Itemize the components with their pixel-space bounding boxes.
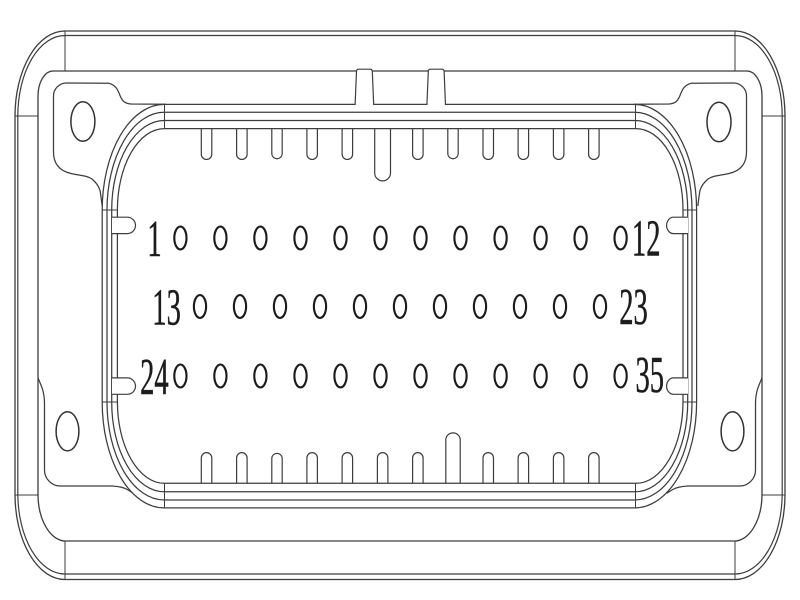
svg-text:24: 24 xyxy=(140,349,169,406)
svg-text:1: 1 xyxy=(147,211,161,268)
svg-text:35: 35 xyxy=(636,347,665,404)
svg-text:13: 13 xyxy=(152,280,181,337)
svg-text:23: 23 xyxy=(619,279,648,336)
svg-text:12: 12 xyxy=(632,211,661,268)
